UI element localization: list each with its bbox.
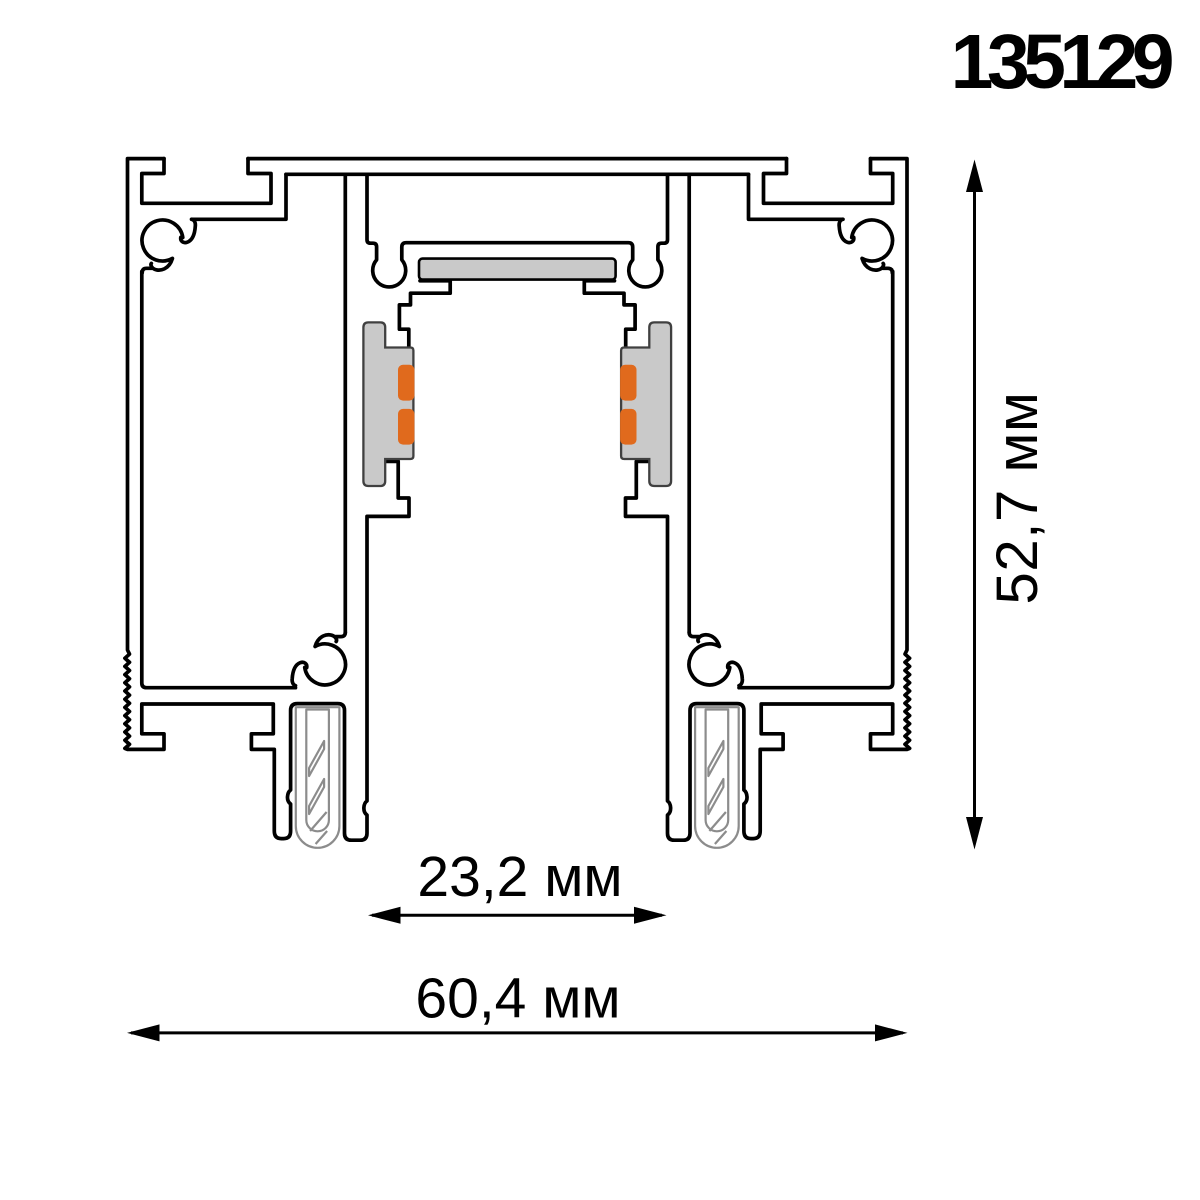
svg-text:52,7 мм: 52,7 мм [985,392,1050,605]
svg-text:23,2 мм: 23,2 мм [417,845,622,909]
svg-text:60,4 мм: 60,4 мм [415,967,620,1031]
svg-text:135129: 135129 [951,19,1172,105]
